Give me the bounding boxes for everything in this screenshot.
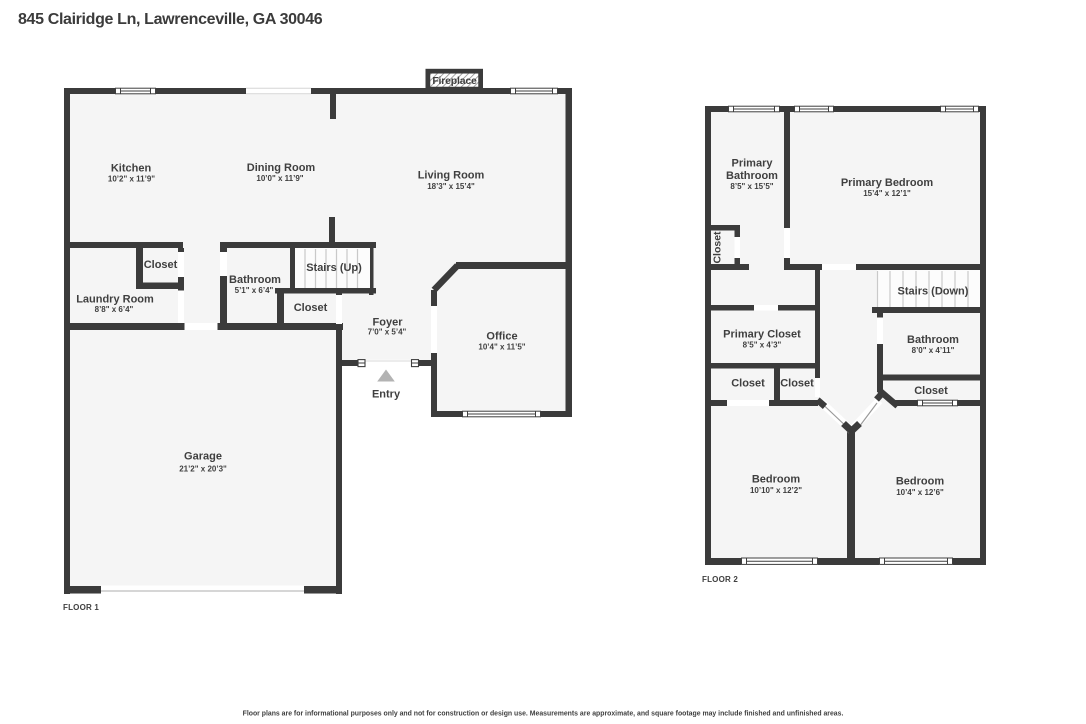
svg-text:Closet: Closet	[914, 385, 948, 397]
svg-text:Dining Room: Dining Room	[247, 162, 316, 174]
svg-text:Primary: Primary	[732, 158, 774, 170]
svg-text:8’5" x 4’3": 8’5" x 4’3"	[743, 341, 782, 350]
svg-text:18’3" x 15’4": 18’3" x 15’4"	[427, 182, 475, 191]
svg-text:21’2" x 20’3": 21’2" x 20’3"	[179, 465, 227, 474]
svg-text:845 Clairidge Ln, Lawrencevill: 845 Clairidge Ln, Lawrenceville, GA 3004…	[18, 11, 323, 28]
svg-text:Fireplace: Fireplace	[432, 75, 477, 87]
svg-text:FLOOR 1: FLOOR 1	[63, 603, 99, 612]
svg-text:8’0" x 4’11": 8’0" x 4’11"	[912, 346, 955, 355]
svg-text:Bedroom: Bedroom	[752, 474, 801, 486]
svg-text:15’4" x 12’1": 15’4" x 12’1"	[863, 189, 911, 198]
svg-text:10’10" x 12’2": 10’10" x 12’2"	[750, 486, 802, 495]
svg-text:Primary Bedroom: Primary Bedroom	[841, 177, 934, 189]
svg-text:Closet: Closet	[144, 259, 178, 271]
svg-text:Office: Office	[486, 331, 517, 343]
svg-text:Stairs (Up): Stairs (Up)	[306, 262, 362, 274]
svg-text:Kitchen: Kitchen	[111, 163, 152, 175]
svg-text:10’4" x 11’5": 10’4" x 11’5"	[478, 343, 525, 352]
svg-text:5’1" x 6’4": 5’1" x 6’4"	[235, 286, 274, 295]
svg-text:Closet: Closet	[780, 378, 814, 390]
svg-text:FLOOR 2: FLOOR 2	[702, 575, 738, 584]
svg-text:Closet: Closet	[712, 231, 724, 264]
svg-text:Entry: Entry	[372, 389, 401, 401]
svg-text:Laundry Room: Laundry Room	[76, 294, 154, 306]
svg-text:Bathroom: Bathroom	[726, 170, 778, 182]
svg-text:8’8" x 6’4": 8’8" x 6’4"	[95, 305, 134, 314]
svg-text:Garage: Garage	[184, 451, 222, 463]
svg-text:Closet: Closet	[731, 378, 765, 390]
svg-text:7’0" x 5’4": 7’0" x 5’4"	[368, 328, 407, 337]
svg-text:Bathroom: Bathroom	[907, 334, 959, 346]
svg-text:Primary Closet: Primary Closet	[723, 329, 801, 341]
svg-text:Floor plans are for informatio: Floor plans are for informational purpos…	[243, 711, 844, 718]
svg-text:10’2" x 11’9": 10’2" x 11’9"	[108, 175, 155, 184]
svg-text:8’5" x 15’5": 8’5" x 15’5"	[730, 182, 773, 191]
svg-text:Stairs (Down): Stairs (Down)	[898, 286, 969, 298]
svg-text:Bathroom: Bathroom	[229, 274, 281, 286]
svg-text:Closet: Closet	[294, 302, 328, 314]
svg-text:Living Room: Living Room	[418, 170, 485, 182]
svg-text:10’4" x 12’6": 10’4" x 12’6"	[896, 488, 944, 497]
svg-text:10’0" x 11’9": 10’0" x 11’9"	[256, 174, 303, 183]
svg-text:Bedroom: Bedroom	[896, 476, 945, 488]
